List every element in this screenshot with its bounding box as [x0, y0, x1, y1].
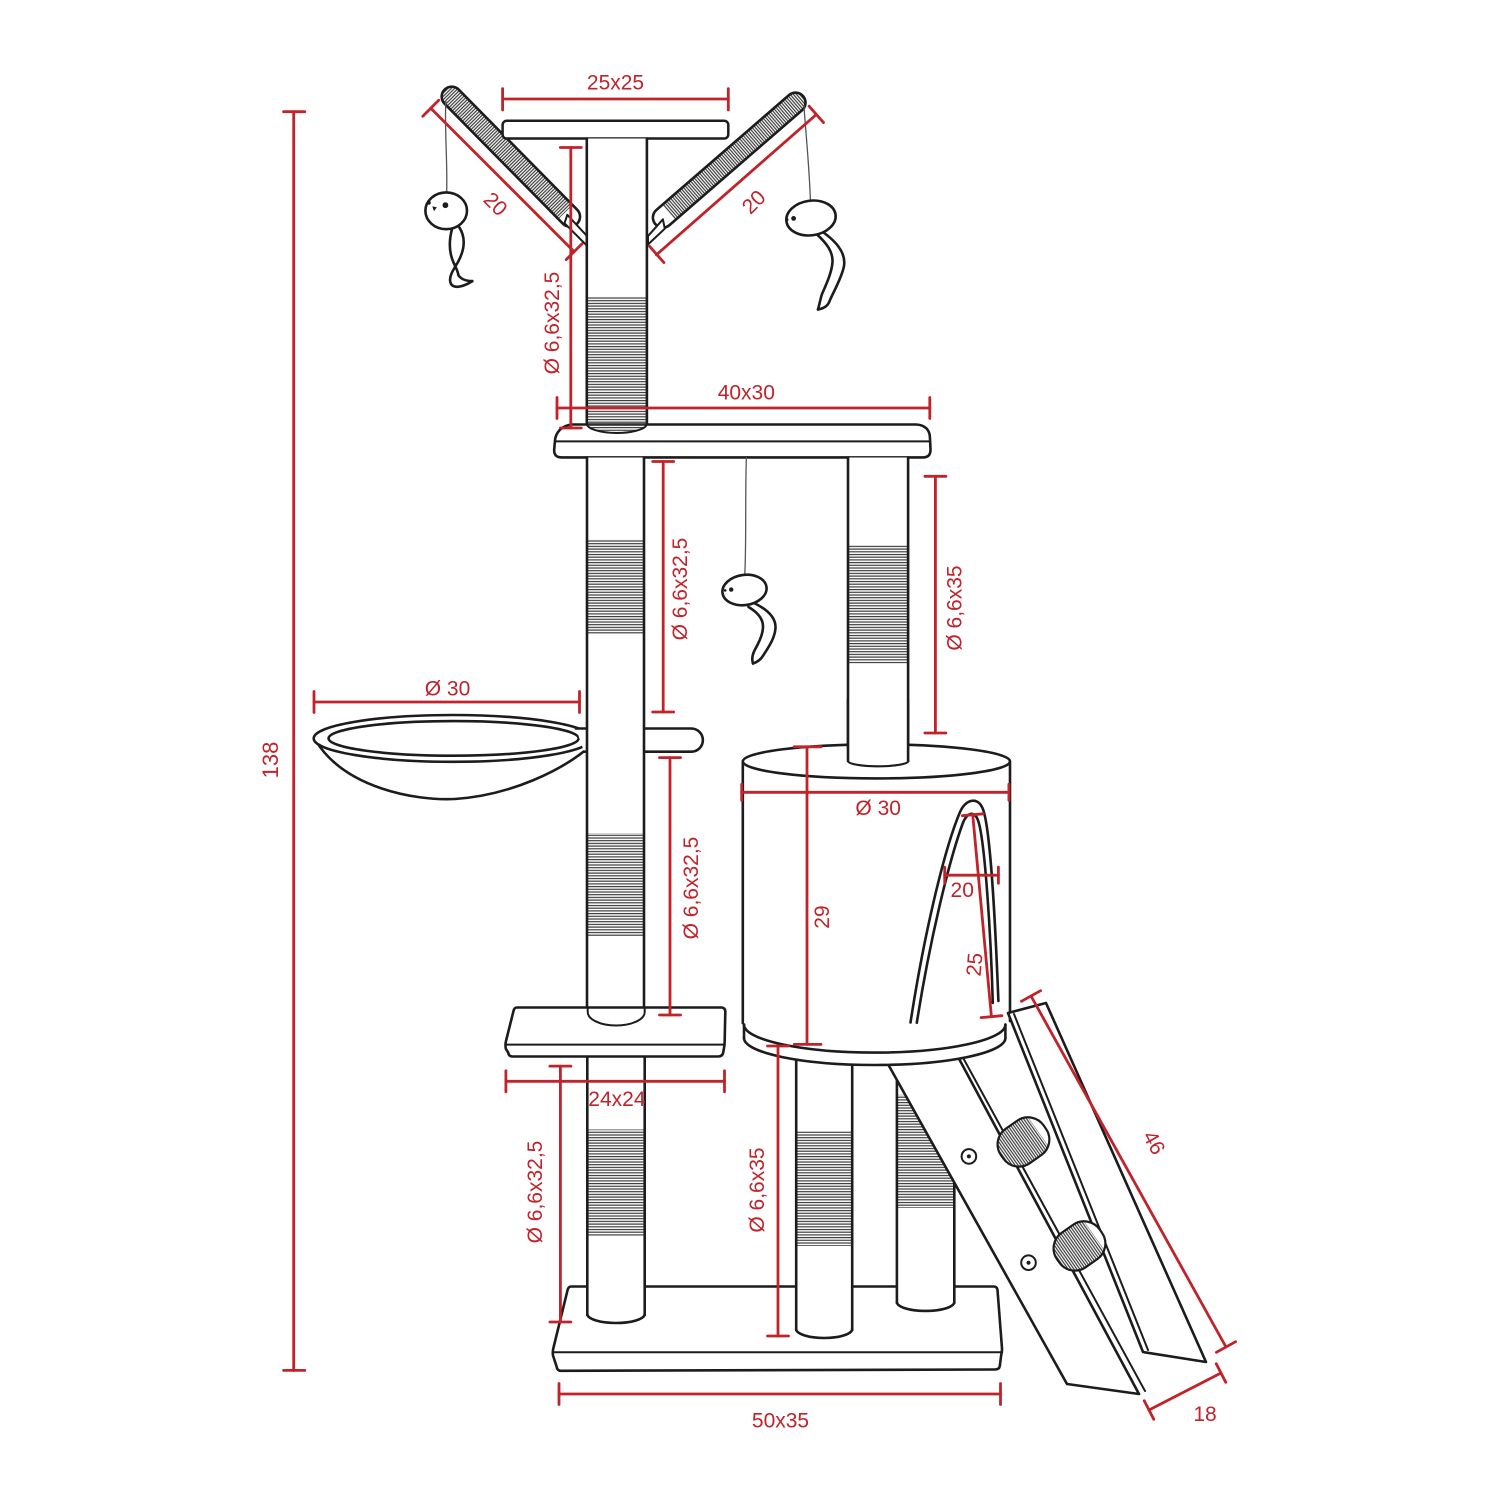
svg-text:20: 20 [951, 879, 974, 902]
svg-text:Ø 30: Ø 30 [855, 797, 901, 820]
svg-text:25x25: 25x25 [587, 72, 644, 95]
svg-text:Ø 6,6x35: Ø 6,6x35 [746, 1147, 769, 1232]
svg-text:18: 18 [1193, 1403, 1216, 1426]
svg-text:Ø 30: Ø 30 [425, 678, 471, 701]
svg-text:Ø 6,6x32,5: Ø 6,6x32,5 [680, 837, 703, 940]
svg-text:Ø 6,6x32,5: Ø 6,6x32,5 [669, 538, 692, 641]
svg-text:Ø 6,6x35: Ø 6,6x35 [944, 565, 967, 650]
svg-text:29: 29 [811, 905, 834, 928]
svg-text:Ø 6,6x32,5: Ø 6,6x32,5 [541, 272, 564, 375]
svg-text:25: 25 [963, 952, 988, 977]
svg-text:50x35: 50x35 [752, 1410, 809, 1433]
svg-text:Ø 6,6x32,5: Ø 6,6x32,5 [524, 1141, 547, 1244]
svg-text:40x30: 40x30 [718, 382, 775, 405]
svg-text:24x24: 24x24 [588, 1088, 646, 1111]
svg-text:138: 138 [258, 742, 283, 779]
